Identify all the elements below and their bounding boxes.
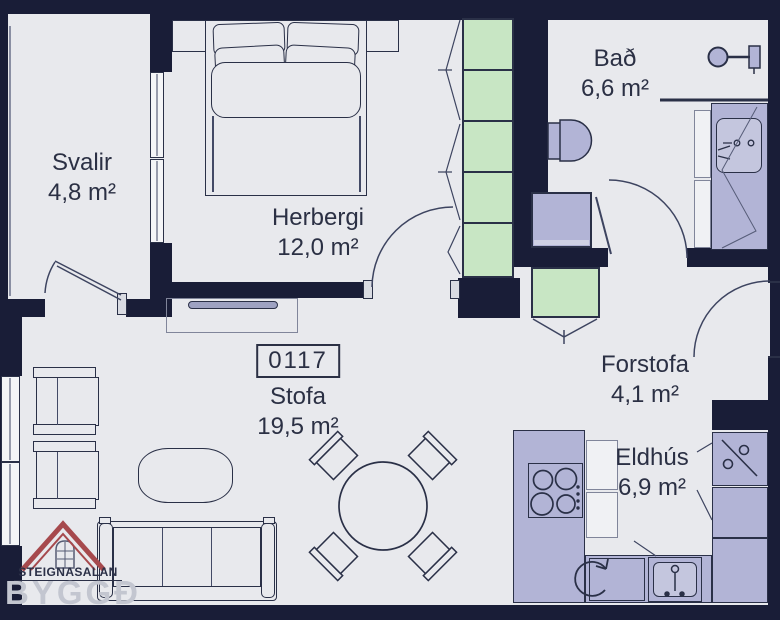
room-name: Forstofa xyxy=(601,350,689,380)
room-area: 6,9 m² xyxy=(615,473,688,503)
room-label-eldhus: Eldhús 6,9 m² xyxy=(615,443,688,503)
cooktop-icon xyxy=(531,469,577,516)
door-arc-bedroom xyxy=(372,207,453,287)
vanity-door-marks xyxy=(722,107,757,248)
wardrobe-fold-lines xyxy=(446,20,460,274)
door-leaf-bathroom xyxy=(596,197,611,254)
dining-table-set xyxy=(309,431,456,580)
room-area: 6,6 m² xyxy=(581,74,649,104)
unit-number: 0117 xyxy=(256,344,340,378)
room-area: 19,5 m² xyxy=(256,412,340,442)
door-arc-entry xyxy=(694,281,770,357)
window-mullion xyxy=(10,74,157,544)
door-arc-balcony xyxy=(45,262,55,293)
room-name: Stofa xyxy=(256,382,340,412)
vanity-sink-icon xyxy=(718,140,754,159)
entry-threshold-lines xyxy=(768,282,780,357)
closet-door-mark xyxy=(533,319,597,344)
room-label-stofa: 0117 Stofa 19,5 m² xyxy=(256,344,340,442)
plan-linework xyxy=(0,0,780,620)
logo-house-icon xyxy=(22,524,104,570)
room-label-herbergi: Herbergi 12,0 m² xyxy=(272,203,364,263)
toilet-icon xyxy=(548,120,591,161)
dining-table xyxy=(339,462,427,550)
room-area: 12,0 m² xyxy=(272,233,364,263)
room-area: 4,1 m² xyxy=(601,380,689,410)
kitchen-sink-icon xyxy=(665,566,684,597)
dishwasher-icon xyxy=(575,559,608,596)
door-arc-bathroom xyxy=(609,180,687,258)
room-label-forstofa: Forstofa 4,1 m² xyxy=(601,350,689,410)
room-name: Herbergi xyxy=(272,203,364,233)
room-name: Eldhús xyxy=(615,443,688,473)
room-area: 4,8 m² xyxy=(48,178,116,208)
fridge-icon xyxy=(722,440,757,476)
shower-icon xyxy=(709,46,761,74)
logo-brand-name: BYGGÐ xyxy=(5,574,141,612)
door-leaf-balcony xyxy=(55,261,121,300)
floor-plan: Svalir 4,8 m² Herbergi 12,0 m² Bað 6,6 m… xyxy=(0,0,780,620)
room-label-bad: Bað 6,6 m² xyxy=(581,44,649,104)
cooktop-knobs xyxy=(576,485,579,509)
room-name: Svalir xyxy=(48,148,116,178)
room-name: Bað xyxy=(581,44,649,74)
room-label-svalir: Svalir 4,8 m² xyxy=(48,148,116,208)
